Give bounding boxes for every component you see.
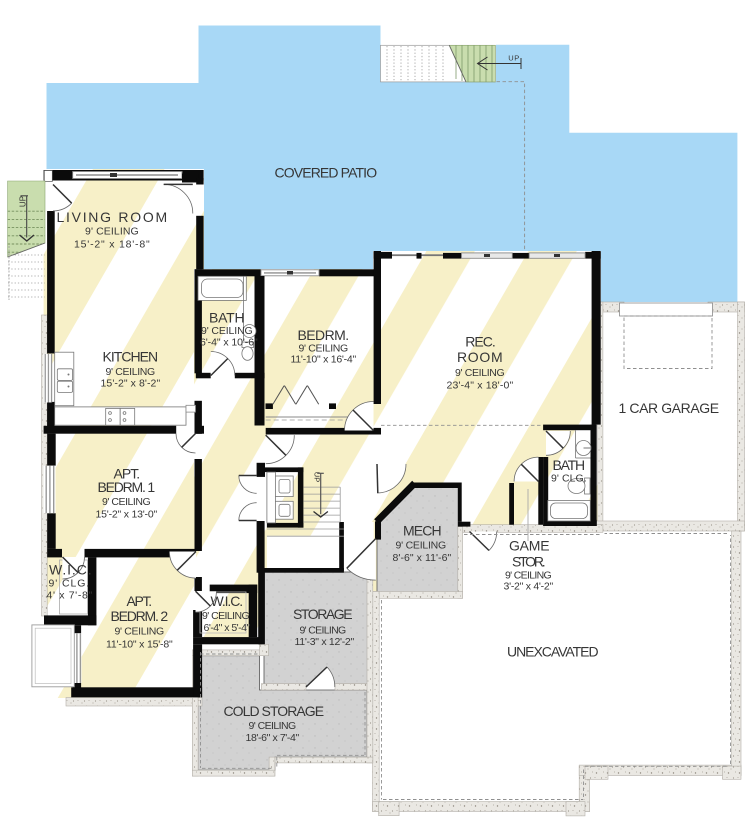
svg-text:GAME: GAME xyxy=(509,538,550,554)
svg-text:9' CLG.: 9' CLG. xyxy=(49,578,90,590)
svg-text:LIVING ROOM: LIVING ROOM xyxy=(57,209,168,225)
svg-text:23'-4" x 18'-0": 23'-4" x 18'-0" xyxy=(447,380,514,392)
svg-text:ROOM: ROOM xyxy=(457,349,503,365)
svg-text:9' CEILING: 9' CEILING xyxy=(115,626,165,638)
svg-text:11'-10" x 16'-4": 11'-10" x 16'-4" xyxy=(291,354,357,366)
svg-text:COLD STORAGE: COLD STORAGE xyxy=(224,703,325,719)
svg-text:9' CEILING: 9' CEILING xyxy=(396,540,447,552)
svg-text:15'-2" x 8'-2": 15'-2" x 8'-2" xyxy=(101,378,161,390)
svg-text:BATH: BATH xyxy=(553,457,586,473)
svg-text:11'-3" x 12'-2": 11'-3" x 12'-2" xyxy=(295,636,355,648)
svg-text:W.I.C.: W.I.C. xyxy=(211,593,244,609)
svg-text:UP: UP xyxy=(19,196,28,207)
svg-text:6'-4" x 10'-6": 6'-4" x 10'-6" xyxy=(200,337,258,349)
svg-text:W.I.C.: W.I.C. xyxy=(49,562,92,578)
svg-text:UP: UP xyxy=(508,54,519,63)
svg-text:BEDRM. 1: BEDRM. 1 xyxy=(98,479,156,495)
svg-text:9' CEILING: 9' CEILING xyxy=(85,226,139,238)
svg-text:9' CEILING: 9' CEILING xyxy=(300,625,347,637)
svg-text:3'-2" x 4'-2": 3'-2" x 4'-2" xyxy=(504,581,554,593)
svg-text:STORAGE: STORAGE xyxy=(293,606,353,622)
svg-text:BEDRM.: BEDRM. xyxy=(298,327,350,343)
svg-text:4' x 7'-8": 4' x 7'-8" xyxy=(47,590,93,602)
svg-text:BEDRM. 2: BEDRM. 2 xyxy=(111,608,169,624)
svg-text:11'-10" x 15'-8": 11'-10" x 15'-8" xyxy=(106,639,173,651)
svg-text:9' CEILING: 9' CEILING xyxy=(455,367,505,379)
svg-text:REC.: REC. xyxy=(465,334,496,350)
svg-text:9' CEILING: 9' CEILING xyxy=(106,366,156,378)
svg-text:STOR.: STOR. xyxy=(512,554,546,570)
svg-text:KITCHEN: KITCHEN xyxy=(103,349,159,365)
svg-text:1 CAR GARAGE: 1 CAR GARAGE xyxy=(619,400,720,416)
svg-text:15'-2" x 13'-0": 15'-2" x 13'-0" xyxy=(96,509,158,521)
svg-text:COVERED PATIO: COVERED PATIO xyxy=(275,165,378,181)
svg-text:9' CLG.: 9' CLG. xyxy=(551,473,587,485)
svg-text:UP: UP xyxy=(313,472,322,482)
svg-text:6'-4" x 5'-4": 6'-4" x 5'-4" xyxy=(204,622,251,634)
svg-text:9' CEILING: 9' CEILING xyxy=(102,496,151,508)
svg-text:APT.: APT. xyxy=(127,593,153,609)
svg-text:18'-6" x 7'-4": 18'-6" x 7'-4" xyxy=(246,732,300,744)
svg-text:15'-2" x 18'-8": 15'-2" x 18'-8" xyxy=(74,239,150,251)
svg-text:9' CEILING: 9' CEILING xyxy=(201,325,253,337)
svg-text:8'-6" x 11'-6": 8'-6" x 11'-6" xyxy=(393,552,452,564)
svg-text:BATH: BATH xyxy=(209,310,245,326)
svg-text:9' CEILING: 9' CEILING xyxy=(249,720,297,732)
svg-text:MECH: MECH xyxy=(403,523,442,539)
svg-text:UNEXCAVATED: UNEXCAVATED xyxy=(507,644,599,660)
svg-text:9' CEILING: 9' CEILING xyxy=(202,610,250,622)
